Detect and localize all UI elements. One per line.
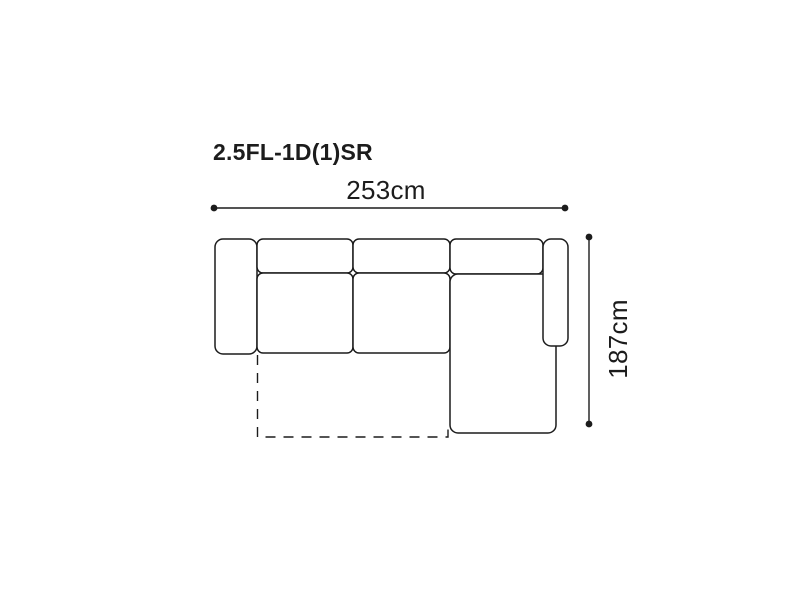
seat-backrest-2 — [353, 239, 450, 273]
seat-cushion-2 — [353, 273, 450, 353]
left-armrest — [215, 239, 257, 354]
height-dimension-endpoint-top-icon — [586, 234, 593, 241]
sofa-top-view-diagram: 2.5FL-1D(1)SR 253cm 187cm — [0, 0, 800, 600]
sofa-dimension-diagram-page: 2.5FL-1D(1)SR 253cm 187cm — [0, 0, 800, 600]
chaise-backrest — [450, 239, 543, 274]
seat-cushion-1 — [257, 273, 353, 353]
chaise-seat — [450, 274, 556, 433]
height-dimension-label: 187cm — [603, 299, 633, 379]
sofa-outline — [215, 239, 568, 433]
width-dimension-label: 253cm — [346, 175, 426, 205]
seat-backrest-1 — [257, 239, 353, 273]
foldout-footprint-dashed-outline — [258, 355, 449, 437]
width-dimension: 253cm — [211, 175, 569, 211]
width-dimension-endpoint-left-icon — [211, 205, 218, 212]
width-dimension-endpoint-right-icon — [562, 205, 569, 212]
height-dimension-endpoint-bottom-icon — [586, 421, 593, 428]
product-code-title: 2.5FL-1D(1)SR — [213, 139, 373, 165]
right-armrest — [543, 239, 568, 346]
height-dimension: 187cm — [586, 234, 633, 428]
